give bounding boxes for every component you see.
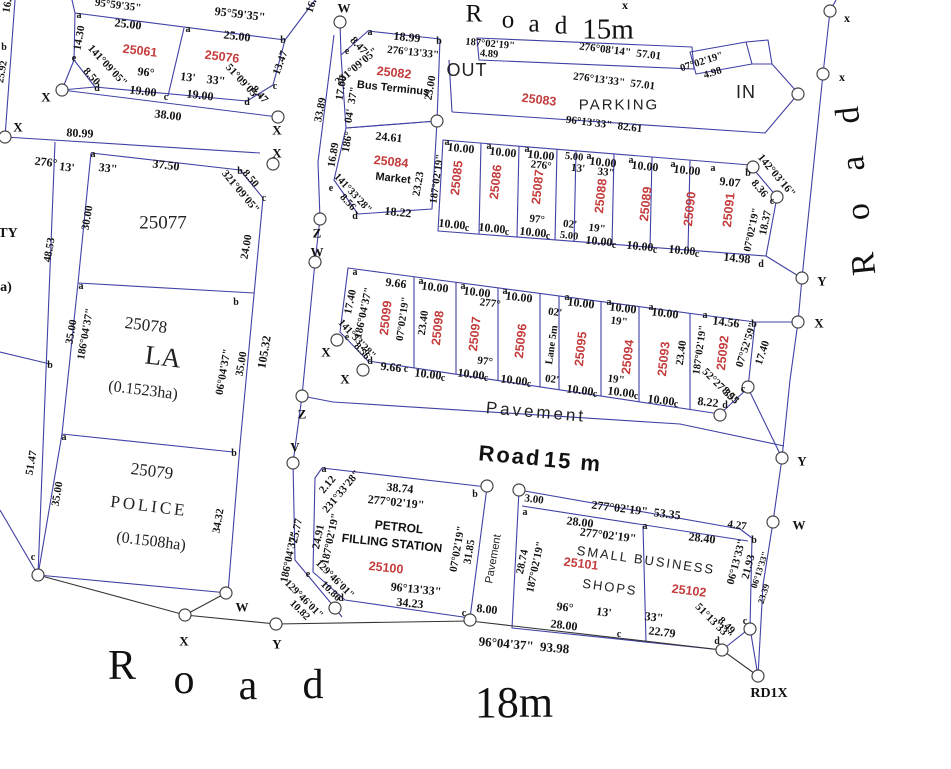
dimension-label: 06°04'37" [215, 348, 234, 396]
road-label: o [174, 659, 195, 701]
place-label: Market [375, 172, 411, 187]
survey-marker-label: Y [817, 275, 826, 288]
dimension-label: 10.00 [626, 239, 654, 254]
dimension-label: 276°08'14" 57.01 [578, 42, 661, 63]
dimension-label: 8.22 [697, 395, 719, 409]
vertex-letter: b [231, 449, 237, 459]
dimension-label: 3.00 [524, 493, 544, 506]
place-label: IN [736, 83, 756, 101]
dimension-label: 35.00 [234, 351, 249, 377]
vertex-letter: a [186, 25, 191, 35]
survey-marker-label: X [272, 124, 281, 137]
dimension-label: 10.00 [668, 243, 696, 258]
vertex-letter: a [711, 164, 716, 174]
dimension-label: 10.00 [607, 384, 635, 399]
dimension-label: 14.30 [72, 25, 87, 51]
road-label: R [466, 2, 483, 27]
vertex-letter: a [77, 11, 82, 21]
dimension-label: 02' [544, 374, 559, 387]
plot-number-label: 25076 [204, 49, 240, 66]
place-label: SHOPS [582, 577, 639, 598]
dimension-label: 4.98 [703, 66, 724, 82]
dimension-label: 33.89 [313, 97, 329, 123]
vertex-letter: c [164, 93, 168, 103]
vertex-letter: e [345, 47, 349, 57]
road-label: R o a d [830, 93, 883, 277]
dimension-label: 17.40 [754, 340, 772, 367]
dimension-label: 10.00 [438, 217, 466, 232]
dimension-label: 34.32 [211, 508, 226, 534]
vertex-letter: a [91, 150, 96, 160]
survey-marker-label: X [321, 346, 330, 359]
vertex-letter: c [695, 250, 699, 260]
dimension-label: 10.00 [519, 225, 547, 240]
vertex-letter: d [94, 84, 100, 94]
vertex-letter: d [714, 637, 720, 647]
plot-number-label: 25086 [488, 164, 504, 200]
dimension-label: 34.23 [396, 596, 424, 611]
vertex-letter: e [306, 570, 310, 580]
vertex-letter: c [612, 241, 616, 251]
plot-number-label: 25084 [373, 154, 409, 170]
dimension-label: 38.74 [386, 481, 414, 496]
vertex-letter: e [345, 333, 349, 343]
plot-number-label: LA [143, 341, 182, 372]
dimension-label: 10.00 [585, 234, 613, 249]
survey-marker-label: W [311, 246, 324, 259]
dimension-label: 37.50 [152, 157, 180, 172]
vertex-letter: b [1, 43, 7, 53]
dimension-label: 95°59'35" [214, 5, 266, 23]
dimension-label: 07°02'19" [396, 296, 413, 341]
dimension-label: 10.00 [500, 372, 528, 387]
dimension-label: 10.00 [609, 300, 637, 315]
road-label: 15m [582, 16, 634, 45]
dimension-label: 9.66 [385, 276, 407, 290]
plan-labels: 95°59'35"95°59'35"a25.00a25.00b14.3016.1… [0, 0, 951, 769]
plot-number-label: 25096 [513, 323, 529, 359]
dimension-label: 13' [180, 70, 197, 84]
plot-number-label: 25093 [656, 341, 672, 377]
dimension-label: 35.00 [50, 481, 65, 507]
dimension-label: 276°13'33" [387, 45, 440, 61]
plot-number-label: (0.1523ha) [107, 379, 178, 403]
place-label: PARKING [579, 98, 659, 113]
vertex-letter: b [280, 36, 286, 46]
vertex-letter: d [352, 212, 358, 222]
plot-number-label: 25092 [715, 335, 731, 371]
dimension-label: 25.92 [0, 60, 10, 84]
dimension-label: 14.56 [712, 314, 740, 329]
dimension-label: 31.85 [462, 539, 477, 565]
vertex-letter: c [674, 400, 678, 410]
plot-number-label: 25100 [368, 560, 404, 576]
vertex-letter: c [505, 228, 509, 238]
vertex-letter: d [367, 357, 373, 367]
vertex-letter: b [436, 37, 442, 47]
dimension-label: 10.00 [631, 159, 659, 174]
dimension-label: 96° [137, 65, 155, 79]
dimension-label: 23.40 [675, 340, 689, 366]
dimension-label: 13' [59, 160, 76, 174]
plot-number-label: 25083 [521, 92, 557, 109]
road-label: d [303, 664, 324, 706]
vertex-letter: c [634, 392, 638, 402]
plot-number-label: 25095 [573, 331, 589, 367]
survey-marker-label: Z [298, 408, 307, 421]
dimension-label: 96° [556, 600, 574, 614]
plot-number-label: 25099 [378, 300, 394, 336]
dimension-label: 13.47 [272, 49, 291, 76]
vertex-letter: d [758, 260, 764, 270]
survey-marker-label: X [179, 635, 188, 648]
dimension-label: 8.47 [248, 84, 269, 106]
dimension-label: 25.00 [114, 16, 142, 31]
dimension-label: 24.61 [375, 130, 403, 145]
vertex-letter: c [31, 553, 35, 563]
vertex-letter: e [72, 54, 76, 64]
place-label: Pavement [484, 534, 503, 585]
dimension-label: 14.98 [723, 251, 751, 266]
dimension-label: 187°02'19" [429, 154, 446, 205]
survey-marker-label: W [338, 2, 351, 15]
dimension-label: 187°02'19" [320, 512, 342, 565]
vertex-letter: a [703, 311, 708, 321]
road-label: Road [478, 442, 543, 469]
vertex-letter: e [329, 184, 333, 194]
vertex-letter: c [741, 385, 745, 395]
plot-number-label: 25101 [563, 556, 599, 573]
plot-number-label: 25087 [530, 169, 546, 205]
dimension-label: 96°13'33" 82.61 [565, 115, 643, 135]
vertex-letter: c [593, 390, 597, 400]
plot-number-label: 25102 [671, 583, 707, 600]
dimension-label: 276° [34, 155, 58, 170]
vertex-letter: a [353, 268, 358, 278]
vertex-letter: c [404, 365, 408, 375]
road-label: 15 m [543, 449, 603, 476]
dimension-label: 186°04'37" [76, 307, 96, 360]
dimension-label: 33" [206, 73, 226, 87]
cadastral-plan: 95°59'35"95°59'35"a25.00a25.00b14.3016.1… [0, 0, 951, 769]
survey-marker-label: x [839, 71, 845, 83]
vertex-letter: a [62, 433, 67, 443]
dimension-label: 19.00 [129, 83, 157, 98]
dimension-label: 30.00 [80, 205, 95, 231]
vertex-letter: c [441, 374, 445, 384]
dimension-label: 96°04'37" 93.98 [478, 635, 570, 656]
dimension-label: 28.00 [550, 617, 578, 632]
dimension-label: 80.99 [66, 126, 94, 139]
road-label: a [528, 12, 539, 37]
place-label: Bus Terminus [356, 80, 429, 99]
survey-marker-label: x [622, 0, 628, 11]
survey-marker-label: X [13, 121, 22, 134]
survey-marker-label: X [272, 147, 281, 160]
dimension-label: 48.53 [42, 237, 57, 263]
dimension-label: 33" [98, 161, 118, 175]
plot-number-label: 25094 [620, 339, 636, 375]
plot-number-label: 25077 [139, 214, 187, 233]
vertex-letter: c [743, 617, 747, 627]
survey-marker-label: W [793, 519, 806, 532]
dimension-label: 276°13'33" 57.01 [572, 72, 655, 93]
vertex-letter: c [653, 246, 657, 256]
vertex-letter: c [262, 194, 266, 204]
vertex-letter: a [523, 508, 528, 518]
dimension-label: 16. [304, 0, 319, 14]
dimension-label: 10.00 [489, 145, 517, 160]
dimension-label: 16.89 [326, 142, 341, 168]
dimension-label: 277°02'19" [367, 493, 425, 511]
dimension-label: 5.00 [559, 231, 578, 243]
vertex-letter: c [770, 197, 774, 207]
plot-number-label: (0.1508ha) [115, 530, 186, 554]
dimension-label: 18.37 [758, 210, 774, 236]
survey-marker-label: X [41, 91, 50, 104]
vertex-letter: a [643, 522, 648, 532]
vertex-letter: c [273, 82, 277, 92]
plot-number-label: 25088 [593, 178, 609, 214]
dimension-label: 4.27 [727, 519, 747, 532]
dimension-label: 19.00 [186, 87, 214, 102]
dimension-label: Lane 5m [545, 325, 561, 365]
dimension-label: 13' [596, 605, 613, 619]
dimension-label: 10.00 [414, 366, 442, 381]
vertex-letter: b [751, 536, 757, 546]
dimension-label: 18.22 [384, 205, 412, 220]
plot-number-label: 25061 [122, 43, 158, 60]
dimension-label: 277° [479, 297, 501, 310]
dimension-label: 38.00 [154, 107, 182, 122]
dimension-label: 16. [1, 0, 14, 14]
dimension-label: 8.00 [476, 602, 498, 616]
dimension-label: 10.00 [673, 163, 701, 178]
dimension-label: 23.00 [423, 75, 438, 101]
dimension-label: 10.00 [447, 141, 475, 156]
survey-marker-label: V [290, 441, 299, 454]
vertex-letter: a [368, 28, 373, 38]
survey-marker-label: Z [313, 227, 322, 240]
road-label: o [502, 8, 515, 33]
dimension-label: 19" [610, 315, 628, 328]
dimension-label: 10.00 [567, 295, 595, 310]
plot-number-label: 25082 [376, 65, 412, 81]
vertex-letter: b [745, 169, 751, 179]
road-label: d [555, 14, 568, 39]
dimension-label: 10.00 [651, 305, 679, 320]
place-label: FILLING STATION [341, 532, 443, 554]
place-label: OUT [447, 61, 488, 79]
dimension-label: 28.40 [688, 530, 716, 545]
vertex-letter: c [462, 609, 466, 619]
plot-number-label: 25091 [721, 192, 737, 228]
dimension-label: 10.00 [478, 221, 506, 236]
road-label: R [108, 645, 136, 687]
dimension-label: 8.36 [749, 178, 770, 200]
dimension-label: 22.79 [648, 624, 676, 639]
vertex-letter: c [484, 374, 488, 384]
dimension-label: 10.00 [457, 366, 485, 381]
dimension-label: 25.00 [223, 28, 251, 43]
dimension-label: 33" [644, 610, 664, 624]
dimension-label: 277°02'19" 53.35 [591, 499, 682, 522]
vertex-letter: b [472, 490, 478, 500]
dimension-label: 9.66 [380, 360, 402, 374]
dimension-label: 23.23 [411, 171, 426, 197]
dimension-label: 187°02'19" [525, 540, 547, 593]
survey-marker-label: X [814, 317, 823, 330]
vertex-letter: a) [0, 281, 12, 295]
plot-number-label: 25078 [124, 314, 168, 336]
dimension-label: 10.00 [505, 289, 533, 304]
plot-number-label: 25079 [130, 460, 174, 482]
vertex-letter: b [47, 361, 53, 371]
survey-marker-label: Y [797, 455, 806, 468]
dimension-label: 9.07 [719, 175, 741, 189]
dimension-label: 186°04'37" [279, 530, 301, 583]
dimension-label: 24.00 [239, 234, 254, 260]
vertex-letter: c [546, 232, 550, 242]
survey-marker-label: Y [272, 638, 281, 651]
dimension-label: 10.00 [421, 279, 449, 294]
dimension-label: 186° [341, 131, 355, 153]
vertex-letter: c [617, 630, 621, 640]
dimension-label: TY [0, 227, 18, 241]
plot-number-label: 25085 [449, 160, 465, 196]
dimension-label: 97° [477, 356, 494, 369]
dimension-label: 277°02'19" [579, 526, 637, 545]
vertex-letter: a [79, 282, 84, 292]
vertex-letter: b [233, 298, 239, 308]
vertex-letter: d [338, 594, 344, 604]
dimension-label: 13' [570, 163, 585, 175]
vertex-letter: c [527, 380, 531, 390]
dimension-label: 51.47 [24, 450, 39, 476]
road-label: 18m [475, 681, 553, 725]
vertex-letter: d [244, 98, 250, 108]
survey-marker-label: x [844, 12, 850, 24]
dimension-label: 02' [547, 307, 562, 320]
plot-number-label: 25090 [682, 191, 698, 227]
dimension-label: 10.00 [566, 382, 594, 397]
survey-marker-label: W [236, 601, 249, 614]
dimension-label: 105.32 [255, 335, 273, 370]
dimension-label: 23.40 [417, 310, 431, 336]
survey-marker-label: X [340, 373, 349, 386]
place-label: PETROL [374, 518, 424, 535]
road-label: a [239, 665, 258, 707]
vertex-letter: c [465, 224, 469, 234]
dimension-label: 10.00 [647, 392, 675, 407]
place-label: POLICE [110, 493, 189, 519]
dimension-label: 18.99 [393, 30, 421, 45]
plot-number-label: 25097 [467, 316, 483, 352]
place-label: Pavement [485, 399, 587, 425]
dimension-label: 95°59'35" [94, 0, 142, 14]
plot-number-label: 25089 [638, 186, 654, 222]
vertex-letter: a [322, 465, 327, 475]
plot-number-label: 25098 [430, 310, 446, 346]
survey-marker-label: RD1X [750, 687, 787, 701]
